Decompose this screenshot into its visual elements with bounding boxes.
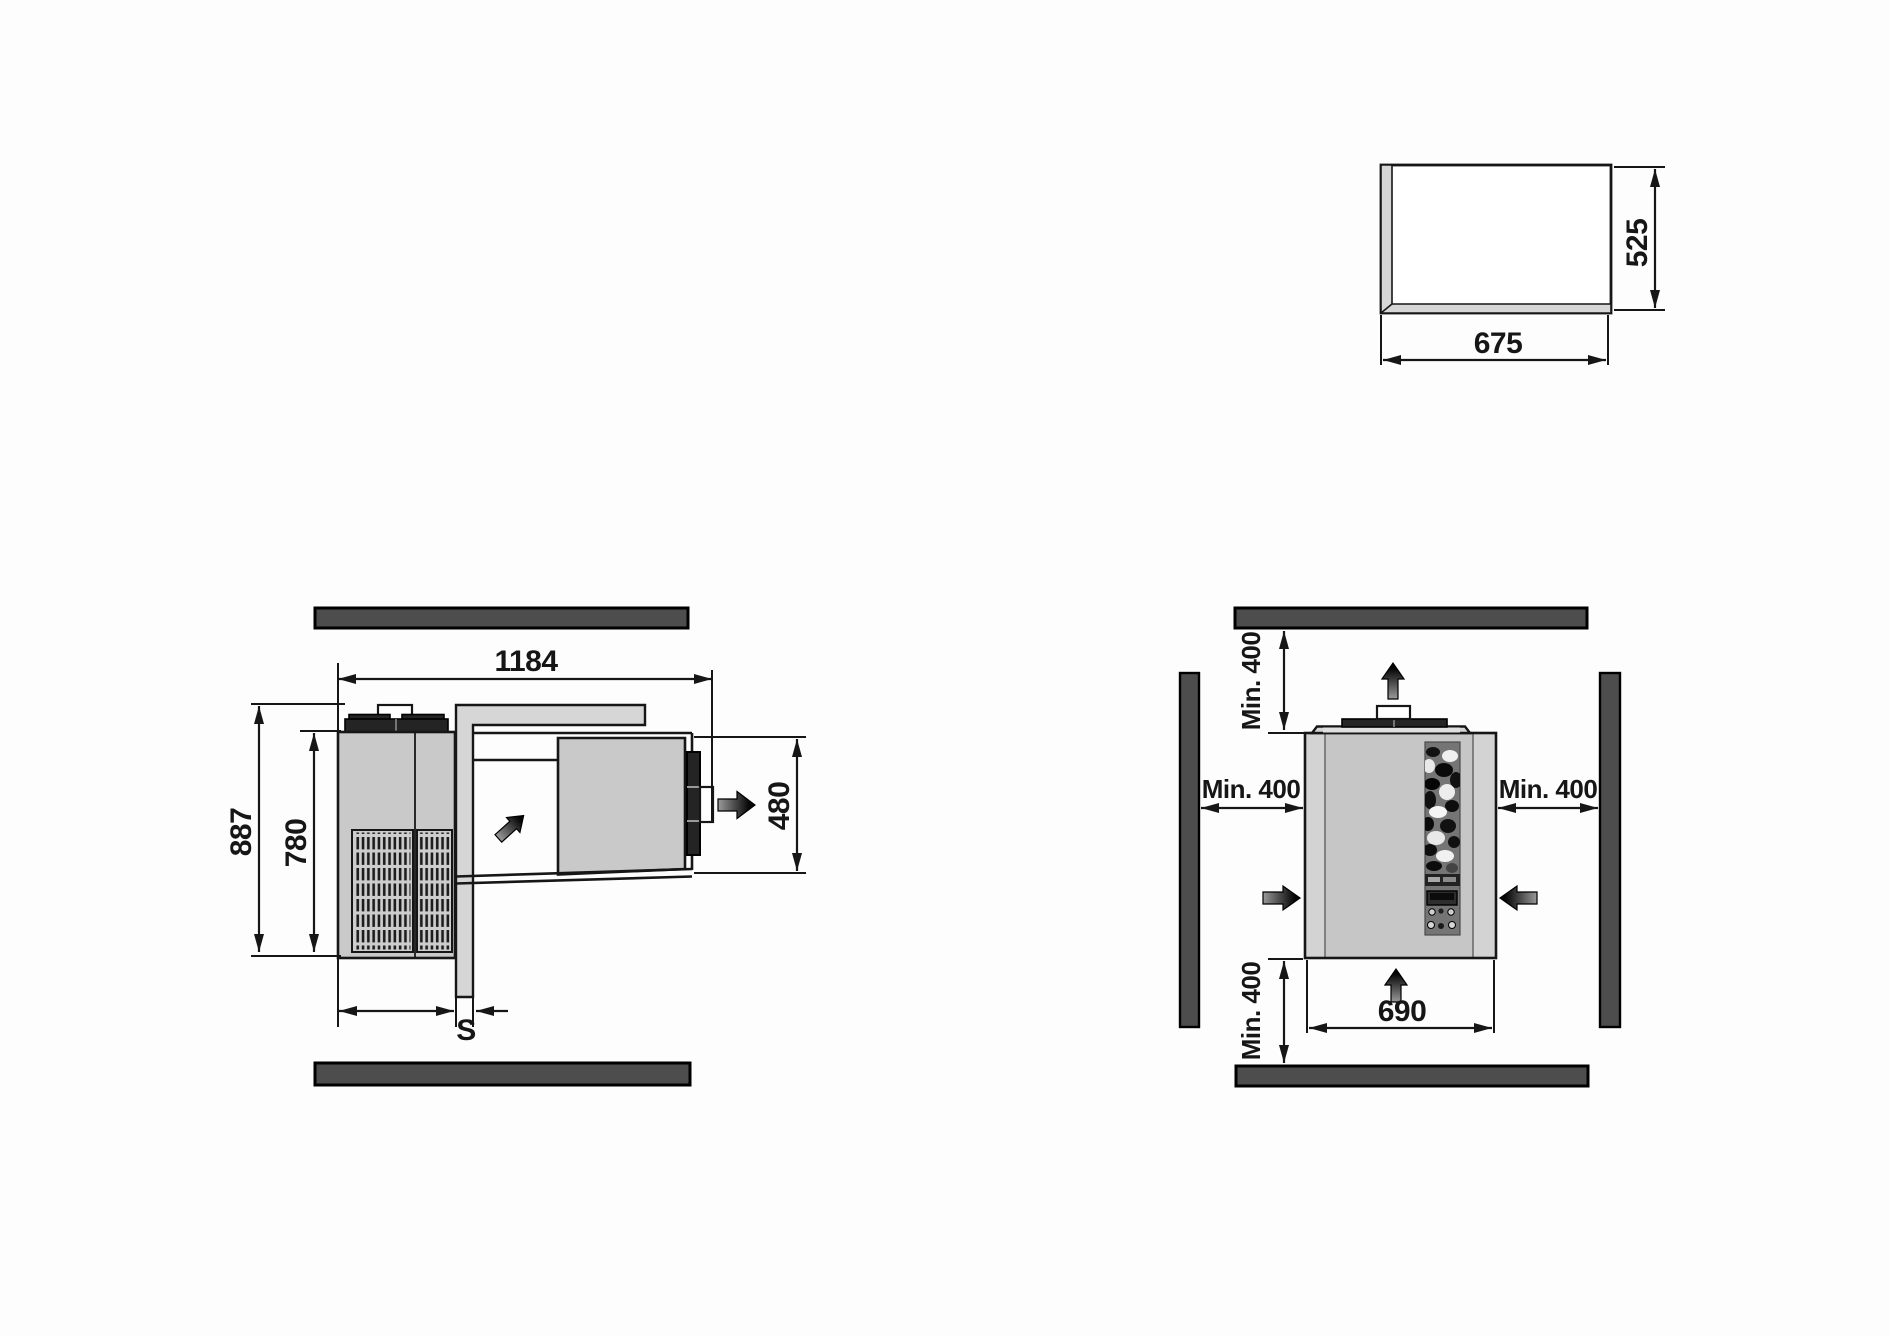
dim-label-clearance-top: Min. 400 bbox=[1236, 632, 1266, 731]
dim-clearance-left: Min. 400 bbox=[1201, 774, 1303, 808]
dim-label-clearance-bottom: Min. 400 bbox=[1236, 962, 1266, 1061]
dim-clearance-right: Min. 400 bbox=[1498, 774, 1598, 808]
dim-label-clearance-right: Min. 400 bbox=[1499, 774, 1598, 804]
dim-label-cutout-height: 525 bbox=[1621, 219, 1654, 268]
unit-top-fitting bbox=[1377, 706, 1410, 719]
dim-label-wall-thickness: S bbox=[456, 1014, 476, 1047]
dim-clearance-bottom: Min. 400 bbox=[1236, 959, 1303, 1063]
airflow-arrow-in-left bbox=[1263, 886, 1300, 910]
unit-front bbox=[1305, 706, 1496, 958]
dim-housing-height: 780 bbox=[280, 731, 341, 952]
dim-label-clearance-left: Min. 400 bbox=[1202, 774, 1301, 804]
unit-front-right-band bbox=[1473, 733, 1496, 958]
dim-cutout-width: 675 bbox=[1381, 315, 1608, 365]
unit-front-body bbox=[1305, 733, 1496, 958]
vent-grille-right bbox=[417, 830, 452, 952]
evaporator-block bbox=[558, 738, 685, 875]
dim-cutout-height: 525 bbox=[1614, 167, 1665, 310]
airflow-arrow-out-right bbox=[718, 792, 755, 819]
airflow-arrow-in-right bbox=[1500, 886, 1537, 910]
side-view-bottom-wall-bar bbox=[315, 1063, 690, 1085]
wall-cutout-view: 525 675 bbox=[1381, 165, 1665, 365]
unit-front-left-band bbox=[1305, 733, 1325, 958]
outdoor-condenser-section bbox=[338, 705, 455, 958]
dim-label-cutout-width: 675 bbox=[1474, 327, 1523, 360]
dim-label-indoor-section-height: 480 bbox=[763, 782, 796, 831]
installation-drawing-page: 1184 887 780 480 bbox=[0, 0, 1890, 1336]
dim-clearance-top: Min. 400 bbox=[1236, 631, 1307, 733]
installation-drawing-canvas: 1184 887 780 480 bbox=[0, 0, 1890, 1336]
unit-top-cap-inner bbox=[1323, 728, 1460, 733]
front-view-right-wall-bar bbox=[1600, 673, 1620, 1027]
dim-label-overall-height: 887 bbox=[225, 808, 258, 857]
condenser-coil-window bbox=[1422, 742, 1462, 935]
dim-unit-width: 690 bbox=[1307, 960, 1494, 1033]
evaporator-fan-grille bbox=[687, 752, 700, 855]
dim-label-unit-width: 690 bbox=[1378, 995, 1427, 1028]
dim-label-housing-height: 780 bbox=[280, 819, 313, 868]
side-view: 1184 887 780 480 bbox=[225, 608, 806, 1085]
dim-wall-thickness: S bbox=[456, 1011, 508, 1047]
side-view-top-wall-bar bbox=[315, 608, 688, 628]
front-view-left-wall-bar bbox=[1180, 673, 1199, 1027]
indoor-casing bbox=[455, 733, 713, 875]
front-view-bottom-wall-bar bbox=[1236, 1066, 1588, 1086]
front-view-top-wall-bar bbox=[1235, 608, 1587, 628]
cutout-panel bbox=[1381, 165, 1611, 313]
airflow-arrow-up bbox=[1382, 663, 1404, 699]
dim-label-overall-width: 1184 bbox=[494, 645, 558, 678]
vent-grille-left bbox=[352, 830, 413, 952]
airflow-arrow-diagonal bbox=[492, 808, 531, 846]
drain-pan-bottom-line bbox=[456, 877, 692, 884]
front-view: Min. 400 Min. 400 Min. 400 Min. 400 690 bbox=[1180, 608, 1620, 1086]
dim-outdoor-depth bbox=[338, 958, 473, 1027]
